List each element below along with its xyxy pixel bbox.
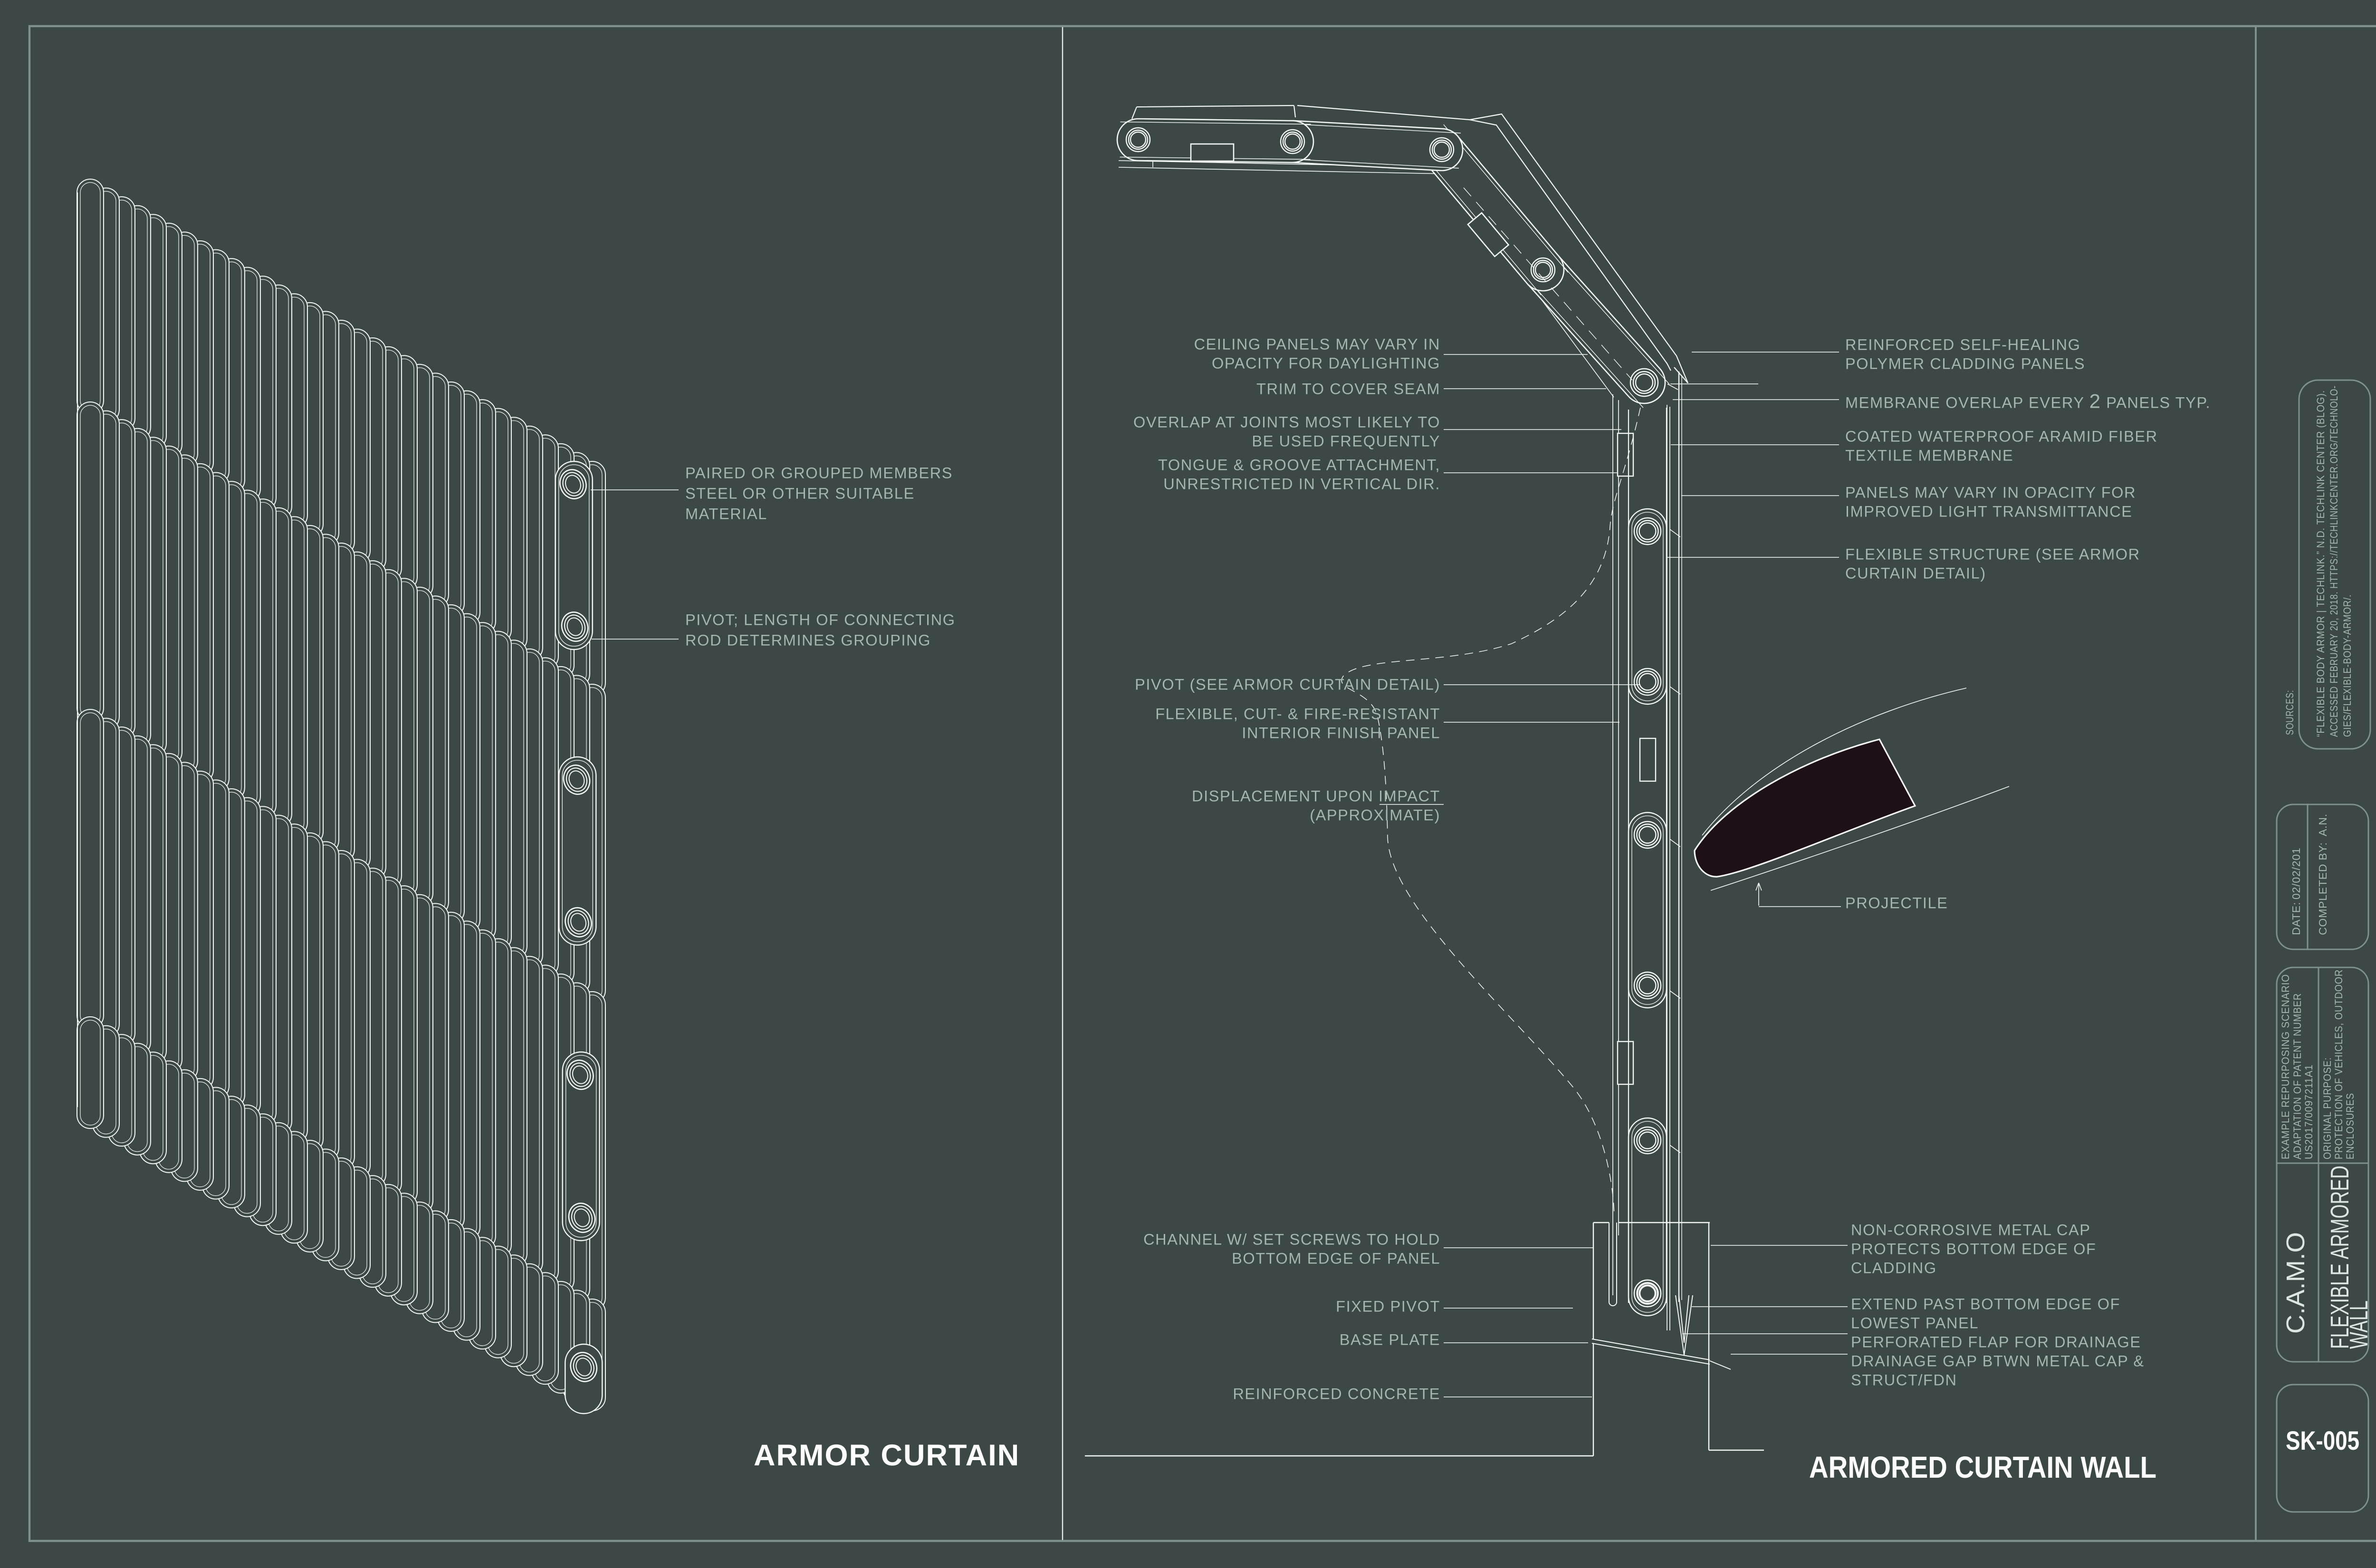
svg-text:US2017/0097211A1: US2017/0097211A1 [2303,1064,2315,1159]
svg-text:ARMOR CURTAIN: ARMOR CURTAIN [754,1439,1020,1472]
svg-text:PROTECTION OF VEHICLES, OUTDOO: PROTECTION OF VEHICLES, OUTDOOR [2333,969,2345,1159]
svg-text:ROD DETERMINES GROUPING: ROD DETERMINES GROUPING [685,632,931,649]
svg-text:DATE:: DATE: [2290,902,2302,935]
svg-text:POLYMER CLADDING PANELS: POLYMER CLADDING PANELS [1845,355,2085,373]
svg-text:ADAPTATION OF PATENT NUMBER: ADAPTATION OF PATENT NUMBER [2291,993,2303,1159]
svg-text:A.N.: A.N. [2317,813,2329,836]
svg-text:ARMORED CURTAIN WALL: ARMORED CURTAIN WALL [1809,1450,2156,1484]
svg-text:LOWEST PANEL: LOWEST PANEL [1851,1315,1979,1332]
svg-text:PROJECTILE: PROJECTILE [1845,895,1948,912]
svg-text:IMPROVED LIGHT TRANSMITTANCE: IMPROVED LIGHT TRANSMITTANCE [1845,503,2133,520]
svg-text:STRUCT/FDN: STRUCT/FDN [1851,1372,1957,1389]
svg-text:CEILING PANELS MAY VARY IN: CEILING PANELS MAY VARY IN [1194,336,1440,353]
svg-text:FLEXIBLE, CUT- & FIRE-RESISTAN: FLEXIBLE, CUT- & FIRE-RESISTANT [1155,706,1440,723]
svg-text:CLADDING: CLADDING [1851,1260,1937,1277]
svg-text:MATERIAL: MATERIAL [685,506,767,523]
svg-text:PAIRED OR GROUPED MEMBERS: PAIRED OR GROUPED MEMBERS [685,465,953,482]
svg-text:FLEXIBLE STRUCTURE (SEE ARMOR: FLEXIBLE STRUCTURE (SEE ARMOR [1845,546,2140,563]
svg-text:SK-005: SK-005 [2286,1425,2359,1455]
svg-text:INTERIOR FINISH PANEL: INTERIOR FINISH PANEL [1242,725,1440,742]
svg-text:REINFORCED CONCRETE: REINFORCED CONCRETE [1233,1386,1440,1403]
svg-text:PIVOT; LENGTH OF CONNECTING: PIVOT; LENGTH OF CONNECTING [685,612,956,629]
svg-text:BOTTOM EDGE OF PANEL: BOTTOM EDGE OF PANEL [1232,1250,1440,1267]
svg-text:BE USED FREQUENTLY: BE USED FREQUENTLY [1252,433,1440,450]
svg-text:PIVOT (SEE ARMOR CURTAIN DETAI: PIVOT (SEE ARMOR CURTAIN DETAIL) [1135,676,1440,693]
svg-text:OPACITY FOR DAYLIGHTING: OPACITY FOR DAYLIGHTING [1212,355,1440,372]
svg-text:DRAINAGE GAP BTWN METAL CAP &: DRAINAGE GAP BTWN METAL CAP & [1851,1353,2145,1370]
svg-text:CURTAIN DETAIL): CURTAIN DETAIL) [1845,565,1986,582]
svg-text:SOURCES:: SOURCES: [2284,690,2296,735]
svg-text:OVERLAP AT JOINTS MOST LIKELY: OVERLAP AT JOINTS MOST LIKELY TO [1133,414,1440,431]
svg-text:NON-CORROSIVE METAL CAP: NON-CORROSIVE METAL CAP [1851,1222,2091,1239]
svg-text:COATED WATERPROOF ARAMID FIBER: COATED WATERPROOF ARAMID FIBER [1845,428,2158,445]
svg-text:ACCESSED FEBRUARY 20, 2018. HT: ACCESSED FEBRUARY 20, 2018. HTTPS://TECH… [2328,385,2340,737]
svg-text:PANELS MAY VARY IN OPACITY FOR: PANELS MAY VARY IN OPACITY FOR [1845,484,2136,501]
svg-text:STEEL OR OTHER SUITABLE: STEEL OR OTHER SUITABLE [685,485,915,502]
svg-text:ORIGINAL PURPOSE:: ORIGINAL PURPOSE: [2321,1057,2333,1159]
svg-text:CHANNEL W/ SET SCREWS TO HOLD: CHANNEL W/ SET SCREWS TO HOLD [1143,1231,1440,1248]
svg-text:WALL: WALL [2345,1300,2373,1349]
svg-text:“FLEXIBLE BODY ARMOR | TECHLIN: “FLEXIBLE BODY ARMOR | TECHLINK.” N.D. T… [2315,390,2327,737]
svg-text:PROTECTS BOTTOM EDGE OF: PROTECTS BOTTOM EDGE OF [1851,1241,2097,1258]
svg-text:EXAMPLE REPURPOSING SCENARIO: EXAMPLE REPURPOSING SCENARIO [2280,974,2291,1159]
svg-text:(APPROXIMATE): (APPROXIMATE) [1310,807,1440,824]
svg-text:COMPLETED BY:: COMPLETED BY: [2317,842,2329,935]
svg-text:02/02/201: 02/02/201 [2290,847,2302,899]
svg-text:FIXED PIVOT: FIXED PIVOT [1336,1298,1440,1315]
svg-text:ENCLOSURES: ENCLOSURES [2344,1093,2356,1159]
svg-text:TEXTILE MEMBRANE: TEXTILE MEMBRANE [1845,447,2013,464]
svg-text:TONGUE & GROOVE ATTACHMENT,: TONGUE & GROOVE ATTACHMENT, [1158,457,1440,474]
svg-text:UNRESTRICTED IN VERTICAL DIR.: UNRESTRICTED IN VERTICAL DIR. [1163,476,1440,493]
svg-text:TRIM TO COVER SEAM: TRIM TO COVER SEAM [1256,381,1440,398]
svg-text:EXTEND PAST BOTTOM EDGE OF: EXTEND PAST BOTTOM EDGE OF [1851,1296,2120,1313]
svg-text:REINFORCED SELF-HEALING: REINFORCED SELF-HEALING [1845,336,2080,354]
svg-text:DISPLACEMENT UPON IMPACT: DISPLACEMENT UPON IMPACT [1192,788,1440,805]
svg-text:PERFORATED FLAP FOR DRAINAGE: PERFORATED FLAP FOR DRAINAGE [1851,1334,2141,1351]
svg-text:C.A.M.O: C.A.M.O [2281,1232,2310,1334]
svg-text:BASE PLATE: BASE PLATE [1340,1331,1440,1348]
svg-text:GIES/FLEXIBLE-BODY-ARMOR/.: GIES/FLEXIBLE-BODY-ARMOR/. [2341,594,2353,737]
